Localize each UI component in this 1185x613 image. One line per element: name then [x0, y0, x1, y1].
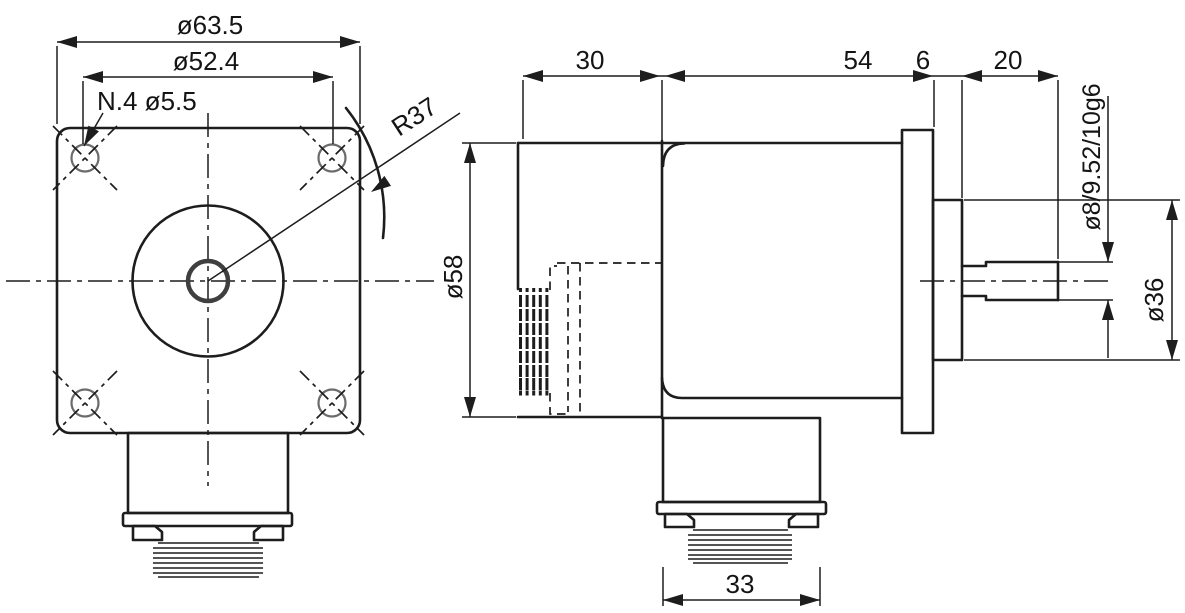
- side-connector-threads: [688, 530, 792, 563]
- dim-mount-holes-label: N.4 ø5.5: [97, 86, 197, 116]
- front-view: ø63.5 ø52.4 N.4 ø5.5 R37: [6, 10, 460, 577]
- side-connector: [657, 418, 826, 563]
- side-shaft: [920, 262, 1114, 300]
- dim-body-length-label: 54: [844, 45, 873, 75]
- dim-body-diameter-label: ø58: [438, 255, 468, 300]
- side-connector-tab-right: [789, 514, 818, 527]
- dim-flange-size-label: ø63.5: [177, 10, 244, 40]
- side-connector-tab-left: [665, 514, 694, 527]
- dim-pilot-diameter: ø36: [964, 200, 1180, 360]
- body-bottom-edge: [662, 378, 902, 398]
- encoder-technical-drawing: ø63.5 ø52.4 N.4 ø5.5 R37: [0, 0, 1185, 613]
- dim-rear-length-label: 30: [576, 45, 605, 75]
- dim-shaft-length-label: 20: [994, 45, 1023, 75]
- mount-hole-top-right: [300, 126, 364, 190]
- callout-mount-holes: N.4 ø5.5: [79, 86, 197, 149]
- side-view: 30 54 6 20 ø58 ø8/9.52/10g6: [438, 45, 1180, 606]
- front-connector-tab-right: [254, 526, 283, 540]
- dim-connector-width: 33: [663, 567, 820, 606]
- dim-shaft-diameter: ø8/9.52/10g6: [1078, 83, 1114, 358]
- side-body-outline: [518, 130, 962, 433]
- callout-corner-radius: R37: [208, 91, 460, 281]
- hidden-rear-connector: [519, 263, 662, 416]
- dim-body-diameter: ø58: [438, 143, 516, 417]
- dim-side-top-chain: 30 54 6 20: [523, 45, 1058, 259]
- body-top-left-round: [663, 144, 684, 167]
- side-pilot-boss: [933, 200, 962, 360]
- mount-hole-bottom-right: [300, 371, 364, 435]
- mount-hole-bottom-left: [53, 371, 117, 435]
- drawing-canvas: ø63.5 ø52.4 N.4 ø5.5 R37: [0, 0, 1185, 613]
- dim-hole-pitch-label: ø52.4: [173, 46, 240, 76]
- dim-pilot-depth-label: 6: [916, 45, 930, 75]
- dim-pilot-diameter-label: ø36: [1139, 278, 1169, 323]
- front-connector-tab-left: [133, 526, 162, 540]
- front-connector-threads: [153, 543, 263, 577]
- dim-corner-radius-label: R37: [386, 91, 442, 142]
- dim-connector-width-label: 33: [726, 569, 755, 599]
- mount-hole-top-left: [53, 126, 117, 190]
- dim-shaft-diameter-label: ø8/9.52/10g6: [1078, 83, 1106, 230]
